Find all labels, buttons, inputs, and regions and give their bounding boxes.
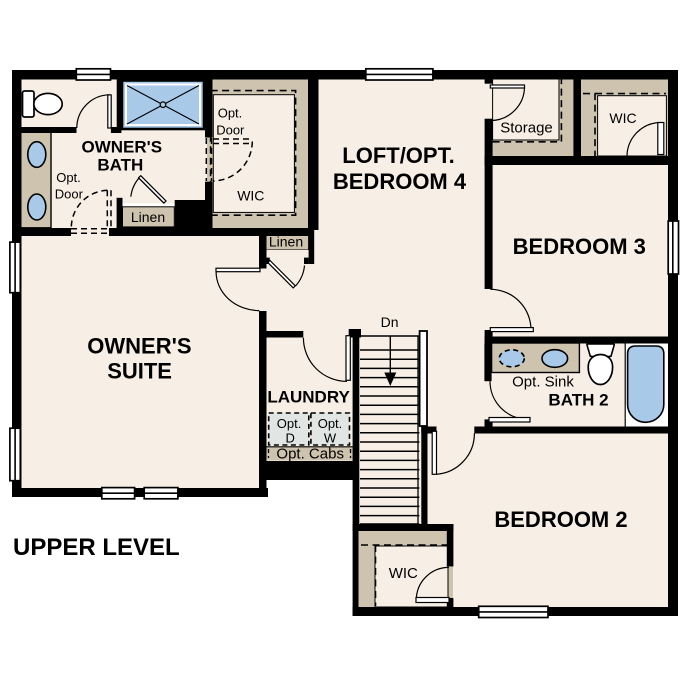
svg-text:D: D: [286, 431, 295, 446]
svg-text:Opt.: Opt.: [318, 416, 343, 431]
svg-text:Opt. Sink: Opt. Sink: [512, 374, 574, 391]
svg-text:LAUNDRY: LAUNDRY: [267, 388, 350, 407]
svg-text:Door: Door: [216, 123, 245, 138]
svg-text:BATH: BATH: [97, 156, 143, 175]
svg-text:Storage: Storage: [500, 120, 553, 137]
svg-text:LOFT/OPT.: LOFT/OPT.: [342, 143, 454, 168]
svg-text:Door: Door: [55, 187, 84, 202]
svg-text:Linen: Linen: [131, 209, 165, 225]
svg-text:BEDROOM 4: BEDROOM 4: [333, 169, 467, 194]
svg-text:OWNER'S: OWNER'S: [82, 138, 163, 157]
svg-text:BEDROOM 2: BEDROOM 2: [494, 507, 627, 532]
svg-text:Linen: Linen: [269, 234, 303, 250]
svg-text:Opt.: Opt.: [277, 416, 302, 431]
svg-text:W: W: [324, 431, 337, 446]
svg-text:Opt. Cabs: Opt. Cabs: [276, 446, 344, 463]
svg-text:OWNER'S: OWNER'S: [87, 334, 191, 359]
svg-text:Opt.: Opt.: [56, 170, 81, 185]
svg-text:WIC: WIC: [237, 188, 264, 204]
svg-text:Opt.: Opt.: [218, 106, 243, 121]
svg-text:WIC: WIC: [609, 110, 636, 126]
svg-text:WIC: WIC: [389, 565, 418, 582]
svg-text:SUITE: SUITE: [107, 359, 172, 384]
svg-text:Dn: Dn: [381, 314, 399, 330]
svg-text:UPPER LEVEL: UPPER LEVEL: [13, 534, 180, 561]
svg-text:BATH 2: BATH 2: [548, 391, 608, 410]
svg-text:BEDROOM 3: BEDROOM 3: [513, 234, 646, 259]
